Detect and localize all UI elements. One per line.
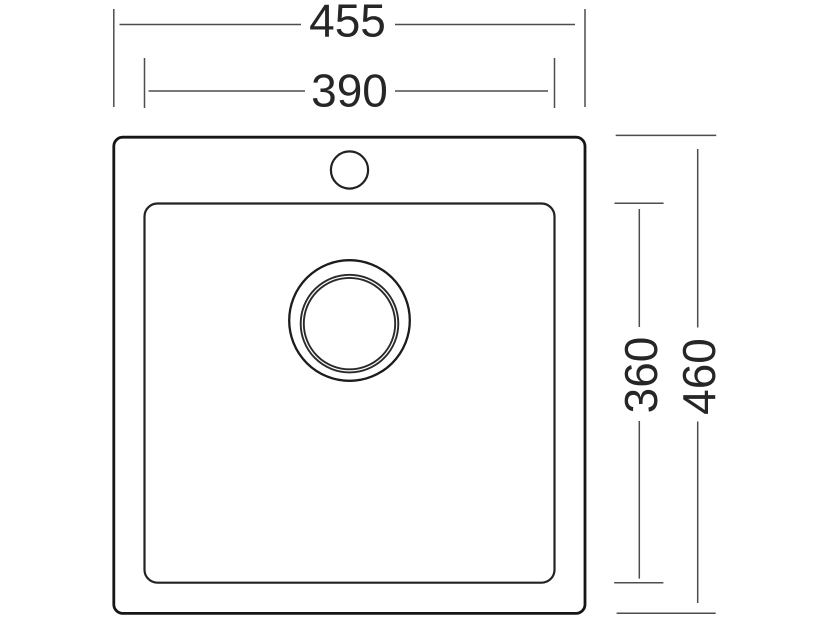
svg-text:360: 360: [615, 337, 667, 414]
svg-text:390: 390: [311, 65, 388, 117]
svg-text:460: 460: [673, 338, 725, 415]
svg-text:455: 455: [309, 0, 386, 47]
